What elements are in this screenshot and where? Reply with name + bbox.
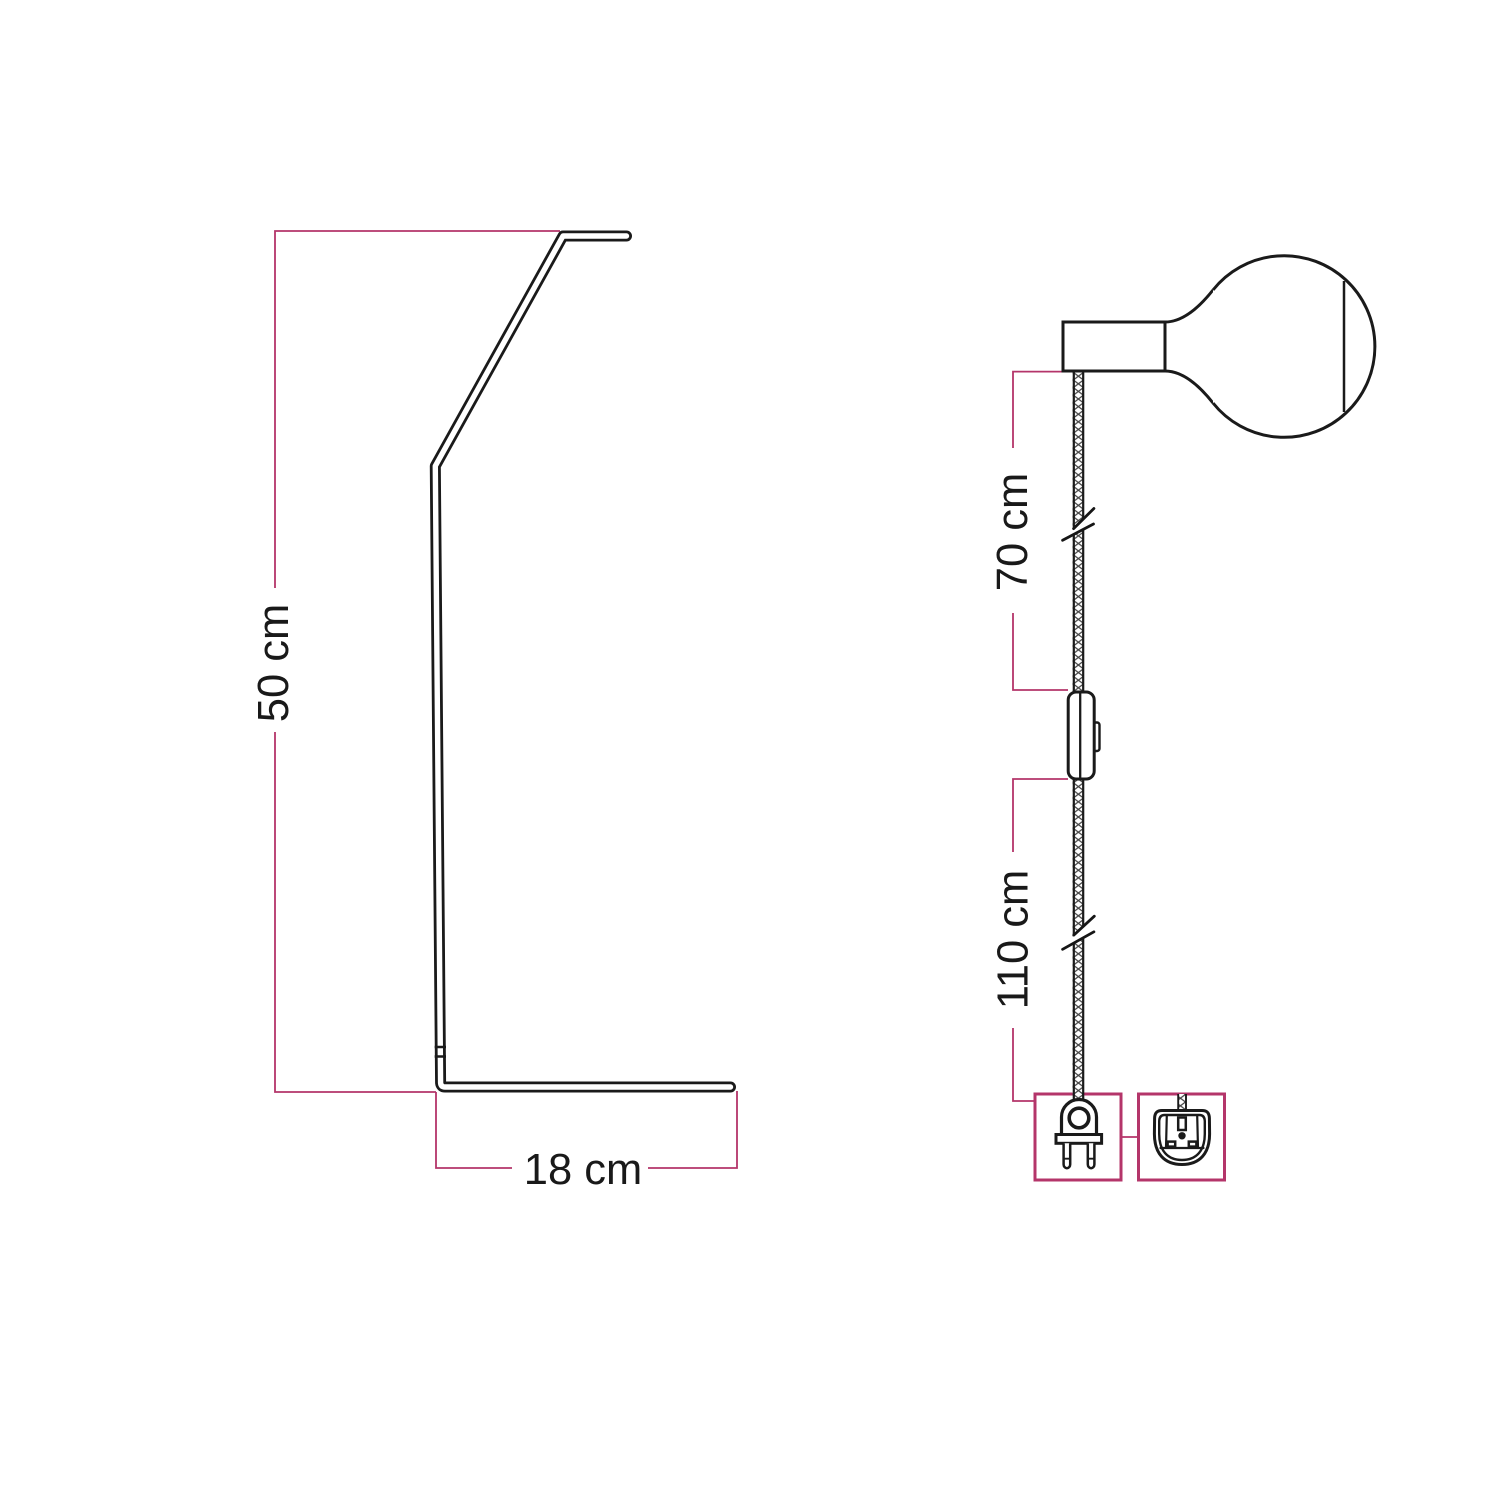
svg-text:70 cm: 70 cm xyxy=(989,473,1037,591)
svg-text:18 cm: 18 cm xyxy=(524,1146,642,1194)
svg-text:110 cm: 110 cm xyxy=(990,870,1038,1009)
svg-text:50 cm: 50 cm xyxy=(250,604,298,722)
